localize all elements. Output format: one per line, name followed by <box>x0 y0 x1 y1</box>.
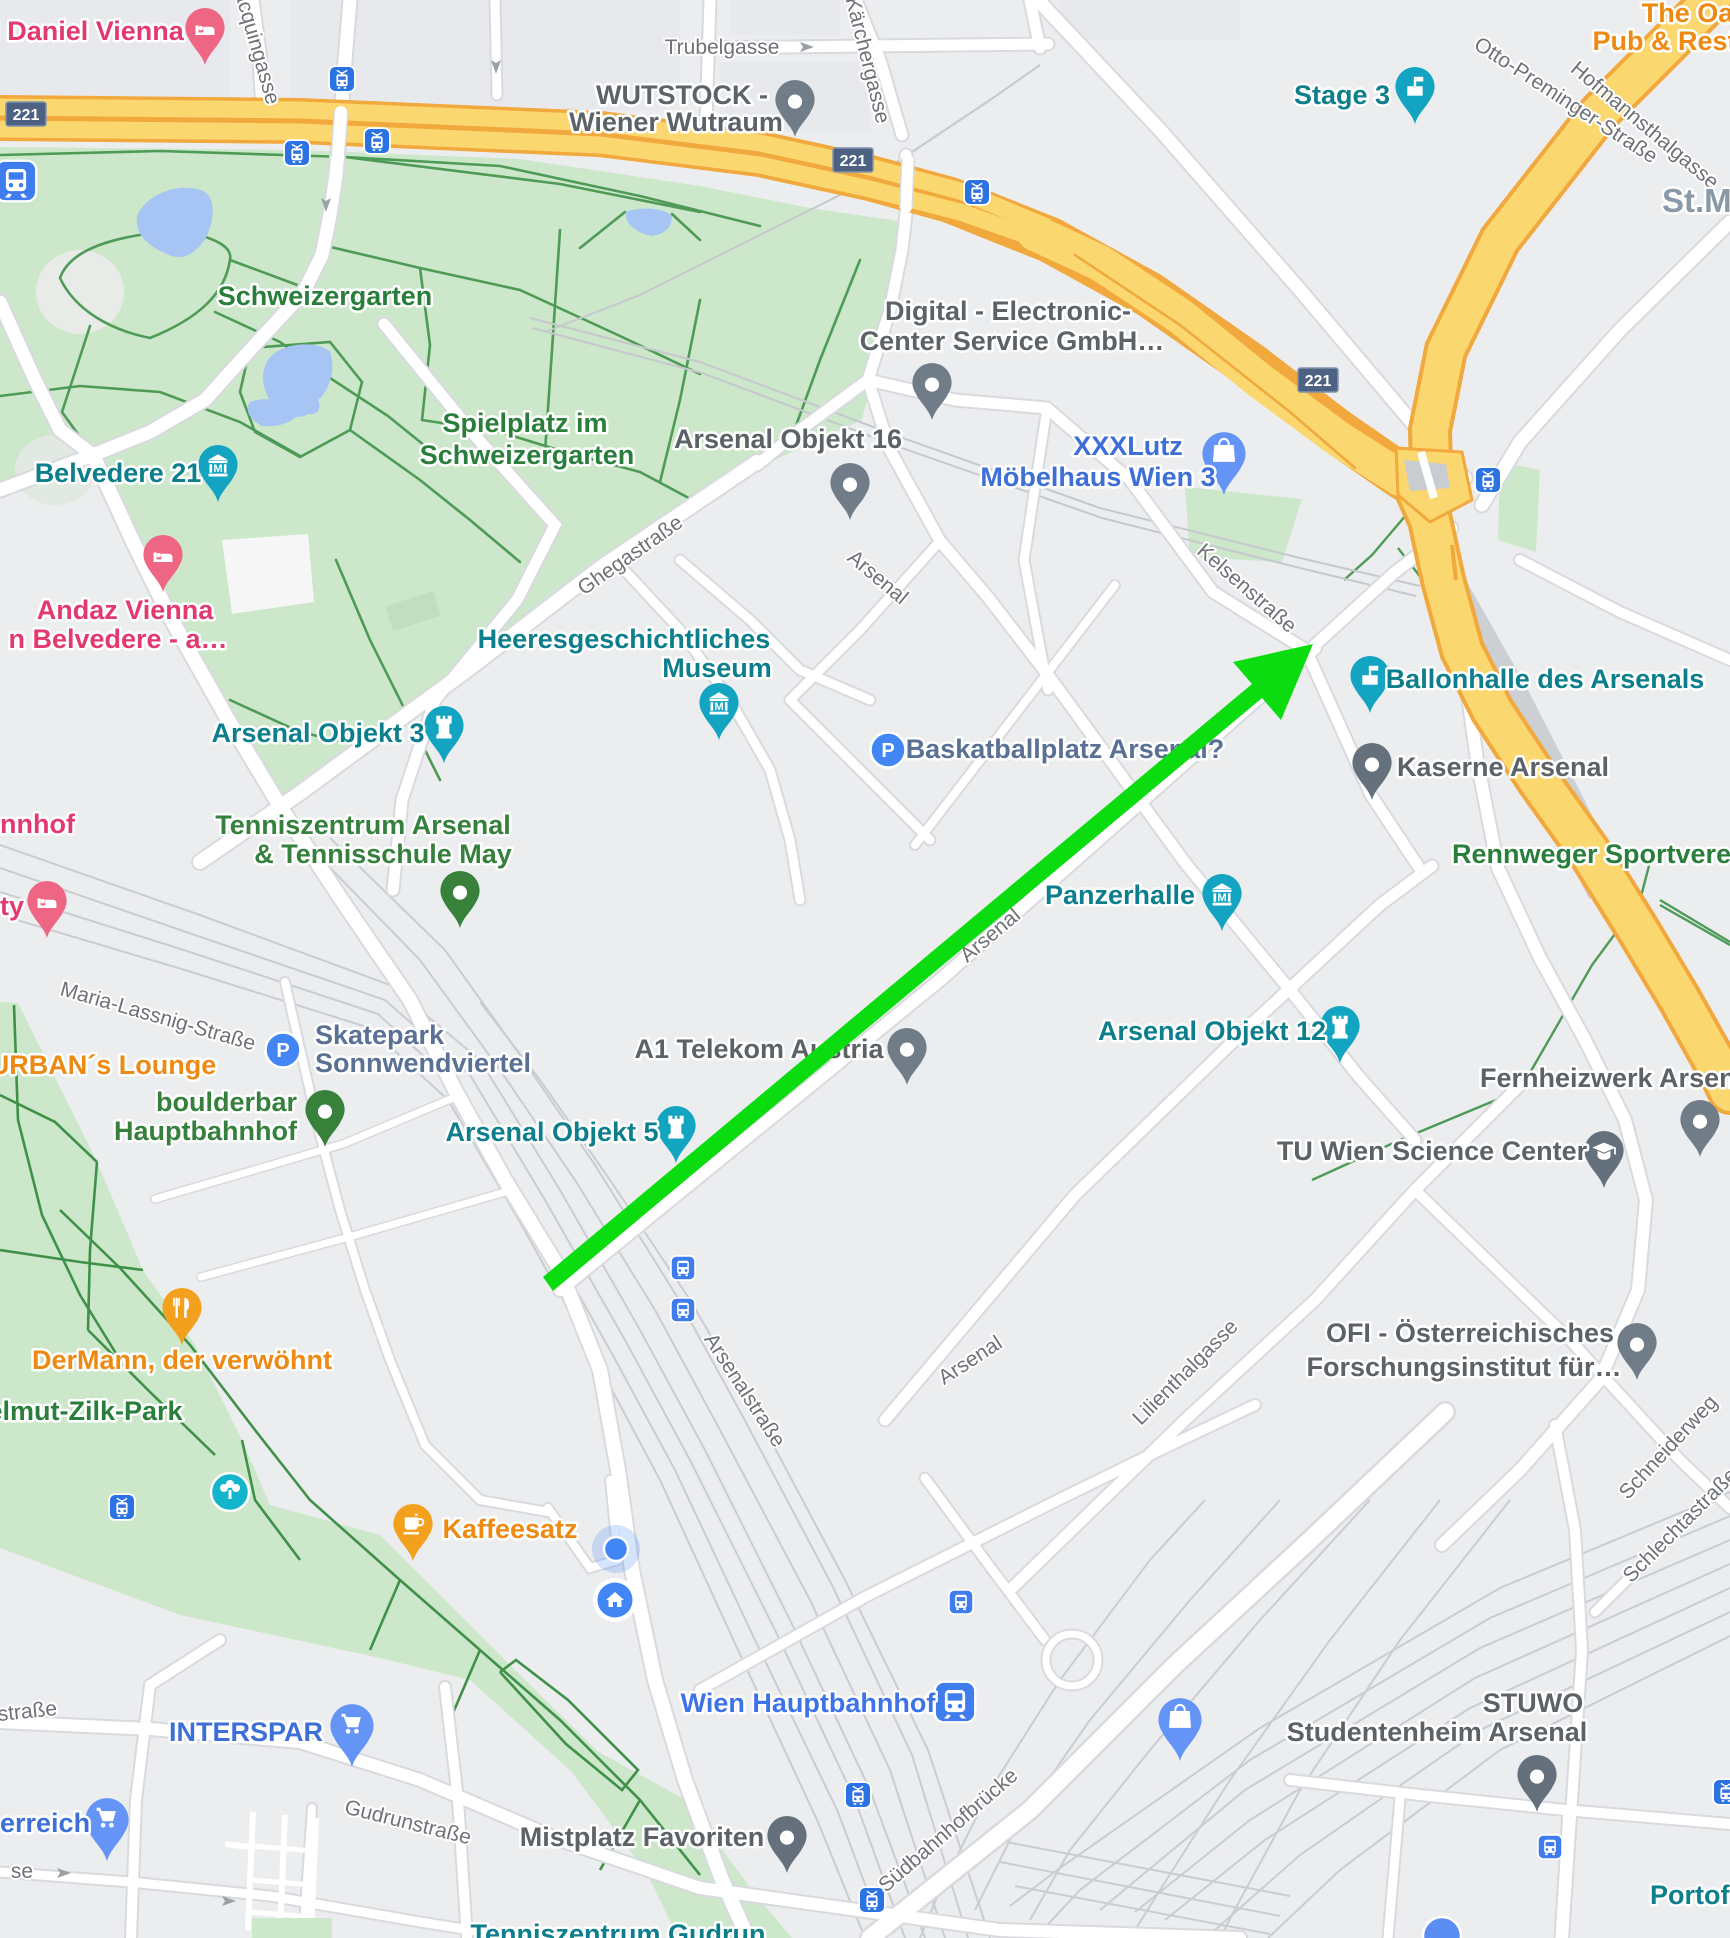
svg-text:Panzerhalle: Panzerhalle <box>1045 880 1195 910</box>
svg-text:Fernheizwerk Arsena: Fernheizwerk Arsena <box>1480 1063 1730 1093</box>
svg-text:Schweizergarten: Schweizergarten <box>420 440 635 470</box>
svg-text:l Daniel Vienna: l Daniel Vienna <box>0 16 185 46</box>
svg-text:Pub & Resta: Pub & Resta <box>1592 26 1730 56</box>
svg-text:Studentenheim Arsenal: Studentenheim Arsenal <box>1287 1717 1588 1747</box>
svg-text:Digital - Electronic-: Digital - Electronic- <box>885 296 1131 326</box>
svg-text:nnhof: nnhof <box>0 809 76 839</box>
svg-text:URBAN´s Lounge: URBAN´s Lounge <box>0 1050 216 1080</box>
svg-text:Arsenal Objekt 3: Arsenal Objekt 3 <box>211 718 424 748</box>
svg-text:Tenniszentrum Arsenal: Tenniszentrum Arsenal <box>215 810 511 840</box>
svg-text:Hauptbahnhof: Hauptbahnhof <box>114 1116 298 1146</box>
svg-text:WUTSTOCK -: WUTSTOCK - <box>596 80 768 110</box>
svg-text:Helmut-Zilk-Park: Helmut-Zilk-Park <box>0 1396 184 1426</box>
svg-text:OFI - Österreichisches: OFI - Österreichisches <box>1326 1318 1614 1348</box>
svg-text:St.Ma: St.Ma <box>1662 182 1730 219</box>
svg-text:Sonnwendviertel: Sonnwendviertel <box>315 1048 531 1078</box>
svg-text:Kaffeesatz: Kaffeesatz <box>442 1514 577 1544</box>
svg-text:TU Wien Science Center: TU Wien Science Center <box>1277 1136 1588 1166</box>
svg-text:Heeresgeschichtliches: Heeresgeschichtliches <box>478 624 771 654</box>
svg-text:Museum: Museum <box>662 653 772 683</box>
svg-text:XXXLutz: XXXLutz <box>1073 431 1183 461</box>
svg-text:Kaserne Arsenal: Kaserne Arsenal <box>1397 752 1609 782</box>
svg-text:STUWO: STUWO <box>1483 1688 1584 1718</box>
svg-text:Portof: Portof <box>1650 1880 1730 1910</box>
svg-text:se: se <box>11 1860 33 1883</box>
svg-text:Wiener Wutraum: Wiener Wutraum <box>569 107 783 137</box>
svg-text:Stage 3: Stage 3 <box>1294 80 1390 110</box>
svg-text:INTERSPAR: INTERSPAR <box>169 1717 323 1747</box>
svg-text:Möbelhaus Wien 3: Möbelhaus Wien 3 <box>980 462 1215 492</box>
svg-text:Trubelgasse: Trubelgasse <box>665 36 780 59</box>
svg-text:Ballonhalle des Arsenals: Ballonhalle des Arsenals <box>1386 664 1705 694</box>
svg-text:Arsenal Objekt 16: Arsenal Objekt 16 <box>674 424 902 454</box>
svg-text:Belvedere 21: Belvedere 21 <box>35 458 202 488</box>
svg-text:Mistplatz Favoriten: Mistplatz Favoriten <box>520 1822 765 1852</box>
svg-text:Tenniszentrum Gudrun: Tenniszentrum Gudrun <box>471 1919 766 1938</box>
svg-text:Rennweger Sportverein: Rennweger Sportverein <box>1452 839 1730 869</box>
svg-text:erreich: erreich <box>0 1808 90 1838</box>
svg-text:& Tennisschule May: & Tennisschule May <box>254 839 512 869</box>
svg-text:Schweizergarten: Schweizergarten <box>218 281 433 311</box>
svg-text:ty: ty <box>0 891 24 921</box>
svg-text:The Oak: The Oak <box>1642 0 1730 28</box>
svg-text:Skatepark: Skatepark <box>315 1020 445 1050</box>
svg-text:Center Service GmbH…: Center Service GmbH… <box>860 326 1165 356</box>
svg-text:Andaz Vienna: Andaz Vienna <box>37 595 215 625</box>
svg-text:Forschungsinstitut für…: Forschungsinstitut für… <box>1307 1352 1622 1382</box>
svg-text:DerMann, der verwöhnt: DerMann, der verwöhnt <box>32 1345 332 1375</box>
svg-text:Wien Hauptbahnhof: Wien Hauptbahnhof <box>681 1688 937 1718</box>
svg-text:boulderbar: boulderbar <box>156 1087 298 1117</box>
svg-text:Arsenal Objekt 12: Arsenal Objekt 12 <box>1098 1016 1326 1046</box>
svg-text:n Belvedere - a…: n Belvedere - a… <box>8 624 227 654</box>
svg-text:Spielplatz im: Spielplatz im <box>442 408 607 438</box>
svg-text:Arsenal Objekt 5: Arsenal Objekt 5 <box>445 1117 658 1147</box>
